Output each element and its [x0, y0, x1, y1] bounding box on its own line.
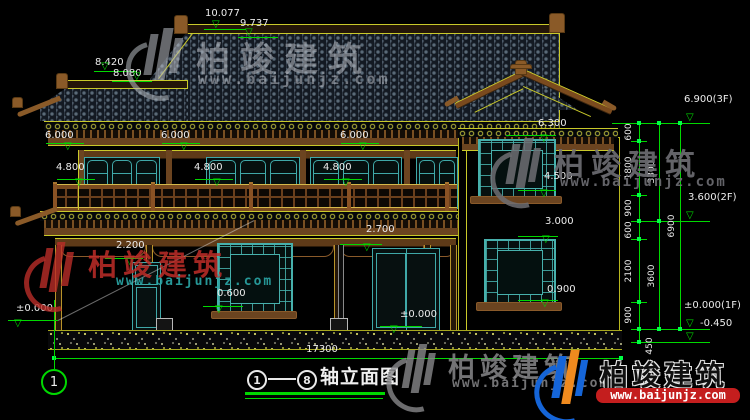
- title-underline-thin: [245, 398, 383, 399]
- dim-2f-top: 6.000: [45, 130, 74, 141]
- chain-dim-6900: 6900: [667, 208, 677, 244]
- dim-rail-top: 4.800: [323, 162, 352, 173]
- dim-ridge-top: 10.077: [205, 8, 240, 19]
- watermark-logo-icon: [492, 138, 550, 198]
- watermark-logo-icon: [26, 242, 82, 302]
- left-door-panel: [136, 287, 157, 328]
- watermark-logo-icon: [128, 28, 192, 90]
- left-eave-tip: [12, 97, 23, 108]
- column-2f: [300, 150, 306, 188]
- watermark-logo-icon: [388, 344, 444, 402]
- level-triangle-icon: ▽: [542, 235, 550, 245]
- level-line-base: [631, 342, 710, 343]
- level-triangle-icon: ▽: [213, 178, 221, 188]
- dim-line: [518, 300, 558, 301]
- level-triangle-icon: ▽: [359, 142, 367, 152]
- wing-window-1f: [484, 239, 556, 306]
- level-triangle-icon: ▽: [363, 243, 371, 253]
- dim-line: [380, 326, 422, 327]
- dim-floor-level: ±0.000: [400, 309, 437, 320]
- watermark-url: www.baijunjz.com: [116, 274, 273, 289]
- brand-url-strip: www.baijunjz.com: [596, 388, 740, 403]
- dim-rail-top: 4.800: [56, 162, 85, 173]
- axis-bubble-1: 1: [41, 369, 67, 395]
- level-3f: 6.900(3F): [684, 94, 733, 105]
- porch-eave-tip: [10, 206, 21, 217]
- downspout: [338, 245, 344, 318]
- dim-2f-top: 6.000: [340, 130, 369, 141]
- dim-line: [203, 306, 243, 307]
- level-triangle-icon: ▽: [342, 178, 350, 188]
- level-triangle-icon: ▽: [101, 62, 109, 72]
- watermark-url: www.baijunjz.com: [198, 70, 391, 88]
- window-1f-sill: [211, 311, 297, 319]
- dim-tick: [637, 219, 641, 223]
- wing-wall-inner-line: [466, 137, 467, 330]
- axis-range-dash: [268, 378, 296, 380]
- column-2f: [404, 150, 410, 188]
- chain-dim-2100: 2100: [624, 253, 634, 289]
- left-ridge-ornament: [56, 73, 68, 89]
- dim-tick: [657, 121, 661, 125]
- dim-tick: [637, 327, 641, 331]
- brand-logo-icon: [536, 350, 598, 414]
- level-triangle-icon: ▽: [686, 332, 694, 342]
- dim-tick: [637, 193, 641, 197]
- dim-line: [518, 236, 558, 237]
- chain-dim-600: 600: [624, 212, 634, 248]
- level-2f: 3.600(2F): [688, 192, 737, 203]
- wing-window-1f-sill: [476, 302, 562, 311]
- chain-dim-900: 900: [624, 297, 634, 333]
- title-axis-end: 8: [297, 370, 317, 390]
- dim-wing-top-1f: 3.000: [545, 216, 574, 227]
- dim-line: [506, 135, 556, 136]
- chain-dim-3600: 3600: [647, 258, 657, 294]
- level-triangle-icon: ▽: [686, 319, 694, 329]
- dim-tick: [637, 121, 641, 125]
- level-triangle-icon: ▽: [64, 142, 72, 152]
- dim-tick: [637, 237, 641, 241]
- title-underline-thick: [245, 392, 385, 395]
- level-triangle-icon: ▽: [686, 211, 694, 221]
- dim-tick: [637, 340, 641, 344]
- dim-wing-eave: 6.300: [538, 118, 567, 129]
- dim-wing-sill-1f: 0.900: [547, 284, 576, 295]
- column-2f: [166, 150, 172, 188]
- dim-main-door-top: 2.700: [366, 224, 395, 235]
- overall-width-dim: 17300: [298, 344, 346, 355]
- level-triangle-icon: ▽: [180, 142, 188, 152]
- watermark-url: www.baijunjz.com: [560, 174, 727, 190]
- dim-tick: [678, 327, 682, 331]
- cad-elevation-canvas: 10.077 ▽ 9.737 ▽ 8.420 ▽ 8.080 ▽ 6.000 ▽…: [0, 0, 750, 420]
- level-triangle-icon: ▽: [215, 305, 223, 315]
- railing-post: [249, 182, 253, 213]
- railing-lattice-panel: [53, 189, 457, 207]
- porch-eave-fascia: [44, 228, 458, 236]
- railing-post: [445, 182, 449, 213]
- dim-tick: [657, 219, 661, 223]
- dim-tick: [637, 300, 641, 304]
- level-triangle-icon: ▽: [14, 319, 22, 329]
- level-1f: ±0.000(1F): [684, 300, 741, 311]
- level-triangle-icon: ▽: [212, 20, 220, 30]
- level-triangle-icon: ▽: [686, 113, 694, 123]
- title-axis-start: 1: [247, 370, 267, 390]
- level-triangle-icon: ▽: [541, 299, 549, 309]
- level-triangle-icon: ▽: [390, 325, 398, 335]
- level-base: -0.450: [700, 318, 732, 329]
- gable-finial-bar: [510, 64, 532, 69]
- ridge-ornament-right: [549, 13, 565, 33]
- level-triangle-icon: ▽: [75, 178, 83, 188]
- dim-window-sill-1f: 0.600: [217, 288, 246, 299]
- level-line-0: [631, 329, 710, 330]
- dim-rail-top: 4.800: [194, 162, 223, 173]
- dim-line: [204, 29, 246, 30]
- dim-tick: [678, 121, 682, 125]
- dim-2f-top: 6.000: [161, 130, 190, 141]
- dim-tick: [657, 327, 661, 331]
- dim-line: [340, 244, 382, 245]
- porch-column: [450, 245, 457, 330]
- railing-post: [151, 182, 155, 213]
- dim-left-ridge-top: 8.420: [95, 57, 124, 68]
- wing-window-1f-core: [497, 250, 543, 295]
